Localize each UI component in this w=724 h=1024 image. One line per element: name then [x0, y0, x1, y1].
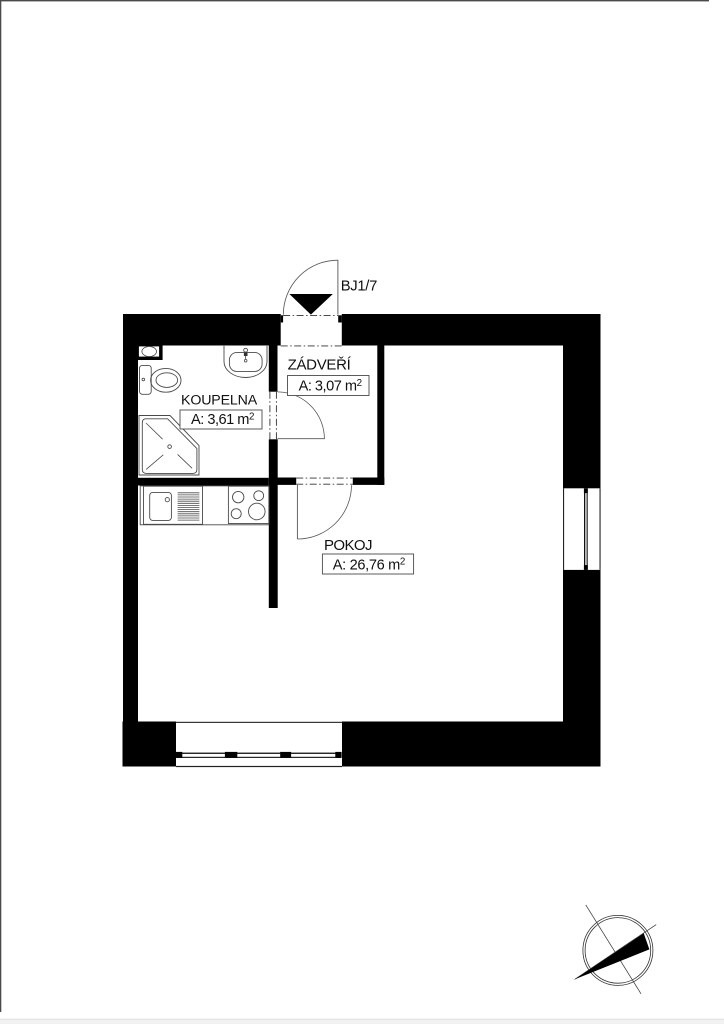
svg-text:POKOJ: POKOJ — [324, 537, 372, 554]
svg-text:BJ1/7: BJ1/7 — [341, 278, 377, 294]
svg-text:A: 3,07 m2: A: 3,07 m2 — [299, 378, 362, 395]
svg-text:KOUPELNA: KOUPELNA — [181, 393, 258, 409]
svg-text:A: 26,76 m2: A: 26,76 m2 — [333, 557, 405, 574]
svg-text:A: 3,61 m2: A: 3,61 m2 — [191, 412, 254, 429]
svg-text:ZÁDVEŘÍ: ZÁDVEŘÍ — [288, 357, 352, 374]
